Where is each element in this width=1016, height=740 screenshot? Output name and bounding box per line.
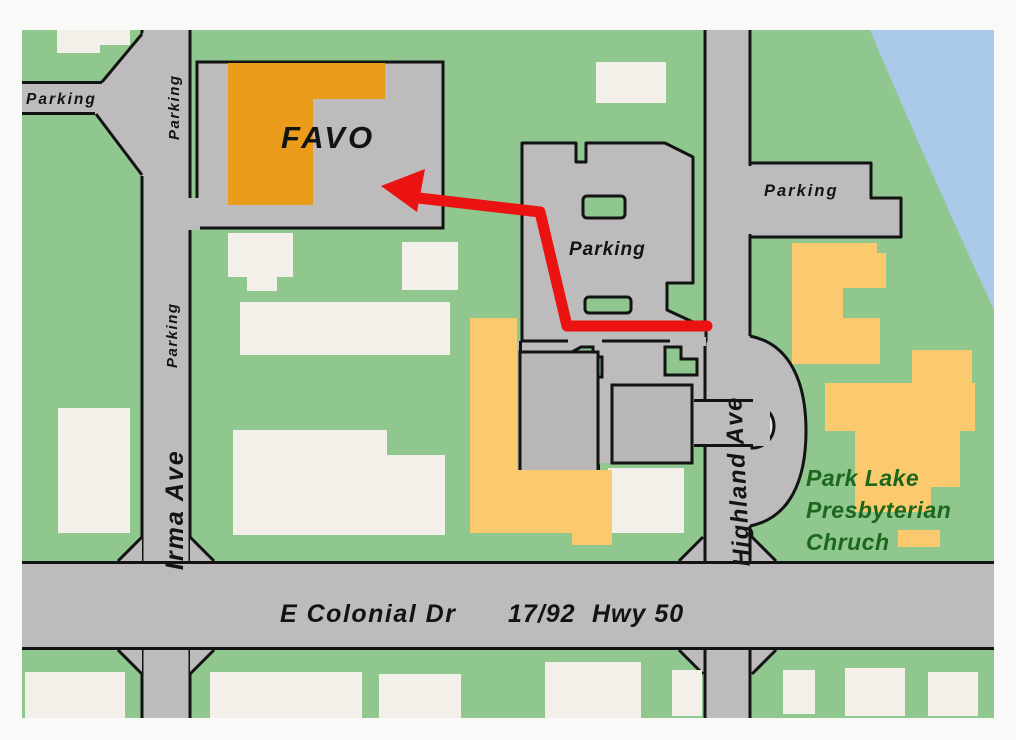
building bbox=[928, 672, 978, 716]
label-parking-irma-mid: Parking bbox=[164, 302, 181, 368]
building bbox=[240, 302, 450, 355]
parking-island bbox=[585, 297, 631, 313]
label-e-colonial-dr: E Colonial Dr bbox=[280, 600, 456, 628]
label-hwy-50: Hwy 50 bbox=[592, 600, 684, 628]
church-building bbox=[825, 383, 975, 431]
parking-island bbox=[583, 196, 625, 218]
church-building bbox=[912, 350, 972, 383]
building bbox=[596, 62, 666, 103]
map-image: FAVO Parking Parking Parking Parking Par… bbox=[0, 0, 1016, 740]
building bbox=[402, 242, 458, 290]
building bbox=[210, 672, 362, 718]
label-parking-nw: Parking bbox=[26, 91, 97, 108]
building bbox=[672, 670, 702, 716]
map-page: FAVO Parking Parking Parking Parking Par… bbox=[0, 0, 1016, 740]
building bbox=[25, 672, 125, 718]
label-church-line2: Presbyterian bbox=[806, 497, 951, 523]
building bbox=[517, 470, 612, 533]
label-church-line1: Park Lake bbox=[806, 465, 919, 491]
building bbox=[783, 670, 815, 714]
label-church-line3: Chruch bbox=[806, 529, 890, 555]
church-building bbox=[898, 530, 940, 547]
building bbox=[470, 318, 517, 533]
gray-building bbox=[612, 385, 692, 463]
building bbox=[93, 30, 130, 45]
building bbox=[247, 277, 277, 291]
label-parking-irma-north: Parking bbox=[166, 74, 183, 140]
gray-building bbox=[520, 352, 598, 482]
label-parking-east: Parking bbox=[764, 182, 839, 200]
building bbox=[845, 668, 905, 716]
building bbox=[379, 674, 461, 718]
building bbox=[58, 408, 130, 533]
label-irma-ave: Irma Ave bbox=[161, 449, 189, 570]
building bbox=[228, 233, 293, 277]
building bbox=[608, 468, 684, 533]
building bbox=[545, 662, 641, 718]
label-hwy-17-92: 17/92 bbox=[508, 600, 576, 628]
building bbox=[572, 533, 612, 545]
label-favo: FAVO bbox=[281, 120, 375, 155]
label-parking-central: Parking bbox=[569, 239, 646, 260]
